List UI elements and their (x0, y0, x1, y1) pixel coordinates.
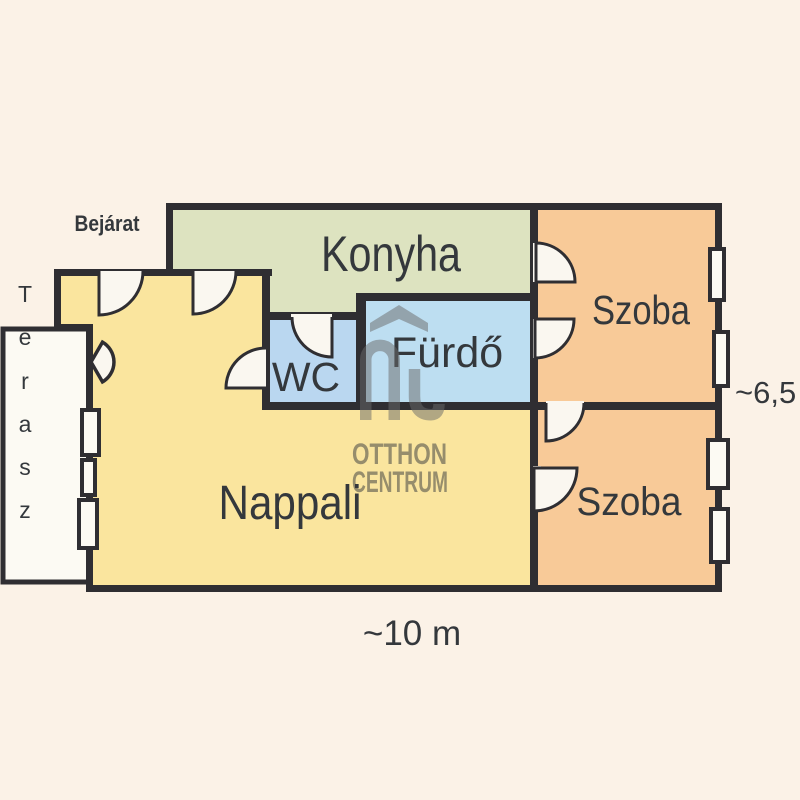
svg-text:Szoba: Szoba (577, 480, 683, 524)
svg-text:~6,5: ~6,5 (735, 375, 796, 410)
svg-text:CENTRUM: CENTRUM (352, 466, 448, 499)
svg-text:Fürdő: Fürdő (391, 329, 503, 377)
svg-text:Konyha: Konyha (321, 226, 461, 282)
svg-text:WC: WC (272, 354, 340, 400)
svg-text:Bejárat: Bejárat (75, 211, 141, 236)
svg-text:Nappali: Nappali (219, 477, 362, 530)
svg-text:T: T (18, 281, 32, 307)
svg-text:e: e (19, 324, 32, 350)
svg-text:Szoba: Szoba (592, 287, 690, 333)
svg-text:a: a (19, 411, 32, 437)
svg-text:r: r (21, 368, 29, 394)
svg-text:s: s (19, 454, 31, 480)
svg-text:z: z (19, 497, 31, 523)
svg-text:~10 m: ~10 m (363, 614, 461, 653)
